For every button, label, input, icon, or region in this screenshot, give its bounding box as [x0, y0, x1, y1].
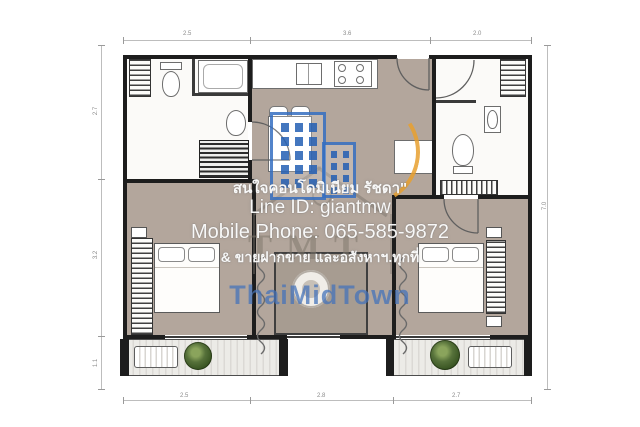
wall-segment [248, 55, 252, 122]
toilet-bowl [452, 134, 474, 166]
dimension-tick [430, 37, 431, 44]
building-window [281, 123, 289, 132]
sink-basin [487, 110, 498, 129]
wardrobe-closet [129, 59, 151, 97]
stove-burner [356, 76, 364, 84]
sliding-door-sill [396, 336, 490, 338]
dimension-tick [544, 389, 551, 390]
dimension-tick [393, 397, 394, 404]
wall-segment [340, 335, 396, 339]
watermark-line-id: Line ID: giantmw [0, 197, 640, 219]
bath-partition [192, 93, 251, 96]
dimension-tick [531, 37, 532, 44]
dimension-tick [250, 37, 251, 44]
dimension-label: 2.5 [180, 393, 188, 399]
dimension-label: 2.0 [473, 31, 481, 37]
plant-icon [430, 340, 460, 370]
sink [226, 110, 246, 136]
toilet-tank [453, 166, 473, 174]
dimension-tick [98, 389, 105, 390]
wall-segment [490, 335, 532, 339]
ac-unit [468, 346, 512, 368]
dimension-tick [123, 37, 124, 44]
switch-box [486, 316, 502, 327]
plant-icon [184, 342, 212, 370]
balcony-wall-cap [386, 339, 394, 376]
dimension-label: 2.5 [183, 31, 191, 37]
stove-burner [338, 64, 346, 72]
dimension-tick [250, 397, 251, 404]
dimension-tick [98, 336, 105, 337]
shelf-unit [199, 140, 249, 178]
dimension-tick [123, 397, 124, 404]
watermark-line-thai-2: & ขายฝากขาย และอสังหาฯ.ทุกที่ [0, 247, 640, 269]
kitchen-sink-divider [308, 64, 309, 84]
balcony-wall-cap [279, 339, 288, 376]
dimension-label: 2.7 [452, 393, 460, 399]
dimension-label: 2.8 [317, 393, 325, 399]
balcony-wall-cap [524, 339, 532, 376]
dimension-line-bottom [123, 400, 532, 401]
stove-burner [356, 64, 364, 72]
sliding-door-sill [165, 336, 247, 338]
dimension-line-top [123, 40, 532, 41]
dimension-tick [544, 45, 551, 46]
toilet-tank [160, 62, 182, 70]
dimension-label: 3.6 [343, 31, 351, 37]
wall-segment [123, 335, 165, 339]
wardrobe-closet [500, 59, 526, 97]
wall-segment [123, 55, 397, 59]
dimension-tick [98, 45, 105, 46]
bathtub-basin [203, 64, 243, 89]
ac-unit [134, 346, 178, 368]
wall-segment [432, 55, 436, 195]
watermark-brand: ThaiMidTown [0, 280, 640, 311]
balcony-wall-cap [120, 339, 129, 376]
dimension-label: 1.1 [93, 359, 99, 367]
dimension-tick [531, 397, 532, 404]
bath-partition [192, 59, 195, 96]
stove-burner [338, 76, 346, 84]
wall-segment [247, 335, 287, 339]
watermark-phone: Mobile Phone: 065-585-9872 [0, 221, 640, 244]
toilet-bowl [162, 71, 180, 97]
sliding-door-sill [287, 336, 340, 338]
dimension-label: 2.7 [93, 107, 99, 115]
wall-segment [429, 55, 532, 59]
floor-plan-image: 2.5 3.6 2.0 2.5 2.8 2.7 2.7 3.2 1.1 7.0 [0, 0, 640, 427]
kitchen-sink [296, 63, 322, 85]
shower-partition [436, 100, 476, 103]
